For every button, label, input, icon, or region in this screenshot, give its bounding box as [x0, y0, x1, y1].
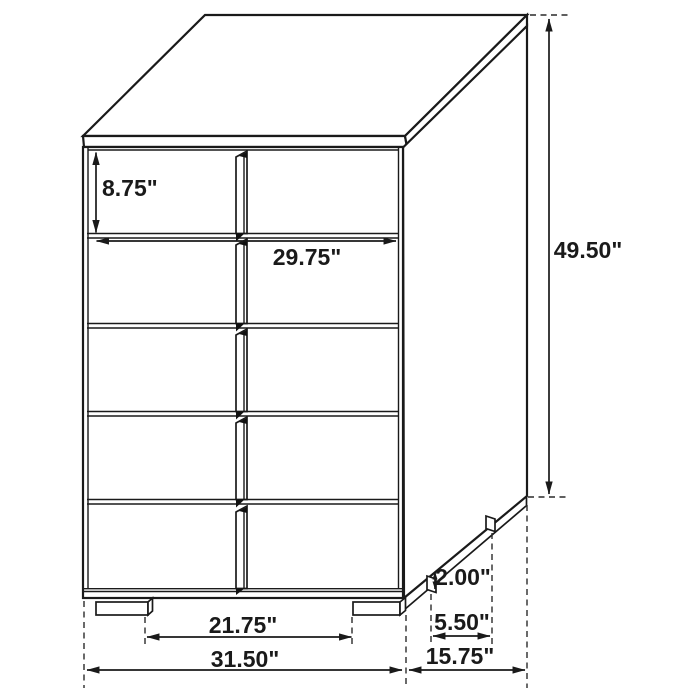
dim-label-foot-height: 2.00": [435, 564, 491, 590]
chest-top-board-front: [83, 136, 407, 147]
dim-label-top-drawer-height: 8.75": [102, 175, 158, 201]
furniture-dimension-diagram: 8.75" 29.75" 49.50" 2.00" 5.50" 15.75" 2…: [0, 0, 700, 700]
dim-label-drawer-width: 29.75": [273, 244, 341, 270]
drawer-handle-strips: [236, 151, 247, 595]
front-right-foot-return: [400, 598, 406, 616]
dim-label-overall-depth: 15.75": [426, 643, 494, 669]
dim-label-overall-height: 49.50": [554, 237, 622, 263]
front-left-foot: [96, 602, 148, 615]
dim-label-side-foot-depth: 5.50": [434, 609, 490, 635]
dim-label-overall-width: 31.50": [211, 646, 279, 672]
side-rear-foot: [486, 516, 495, 532]
dim-label-front-feet-spacing: 21.75": [209, 612, 277, 638]
front-left-foot-return: [148, 598, 153, 615]
front-right-foot: [353, 602, 400, 615]
chest-drawing: [83, 15, 527, 615]
